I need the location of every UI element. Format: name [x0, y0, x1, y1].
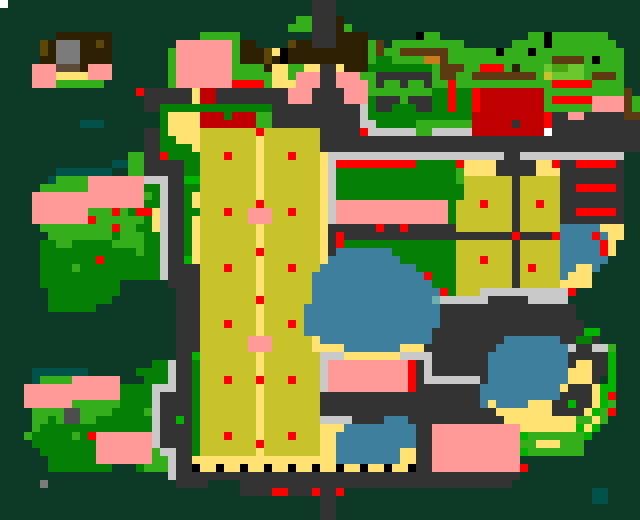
- game-world-map: [0, 0, 640, 520]
- pixel-map: [0, 0, 640, 520]
